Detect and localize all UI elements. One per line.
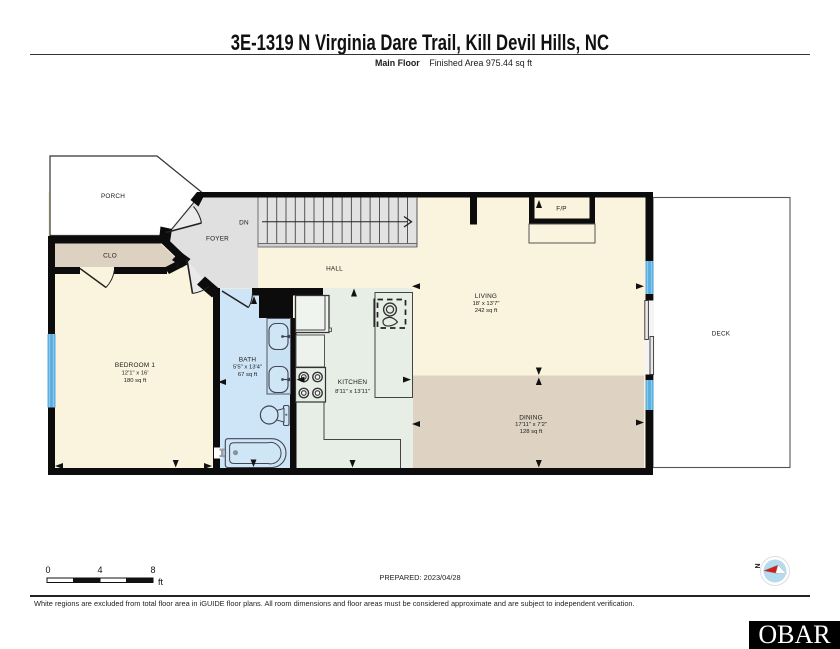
svg-text:FOYER: FOYER bbox=[206, 236, 229, 243]
svg-text:128 sq ft: 128 sq ft bbox=[520, 429, 543, 435]
svg-text:DINING: DINING bbox=[519, 414, 543, 421]
svg-text:18' x 13'7": 18' x 13'7" bbox=[473, 301, 500, 307]
svg-text:67 sq ft: 67 sq ft bbox=[238, 372, 258, 378]
svg-text:DN: DN bbox=[239, 220, 249, 227]
svg-text:BATH: BATH bbox=[239, 357, 257, 364]
svg-text:DECK: DECK bbox=[712, 331, 731, 338]
svg-text:242 sq ft: 242 sq ft bbox=[475, 308, 498, 314]
svg-text:8'11" x 13'11": 8'11" x 13'11" bbox=[335, 389, 370, 395]
svg-text:12'1" x 16': 12'1" x 16' bbox=[122, 371, 149, 377]
svg-text:N: N bbox=[755, 563, 762, 568]
svg-text:LIVING: LIVING bbox=[475, 293, 497, 300]
svg-text:KITCHEN: KITCHEN bbox=[338, 379, 368, 386]
svg-text:5'5" x 13'4": 5'5" x 13'4" bbox=[233, 365, 262, 371]
svg-text:17'11" x 7'2": 17'11" x 7'2" bbox=[515, 422, 547, 428]
svg-text:180 sq ft: 180 sq ft bbox=[124, 378, 147, 384]
svg-text:BEDROOM 1: BEDROOM 1 bbox=[115, 362, 155, 369]
svg-text:PORCH: PORCH bbox=[101, 193, 125, 200]
svg-text:HALL: HALL bbox=[326, 266, 343, 273]
svg-text:CLO: CLO bbox=[103, 253, 117, 260]
svg-text:F/P: F/P bbox=[556, 206, 567, 213]
